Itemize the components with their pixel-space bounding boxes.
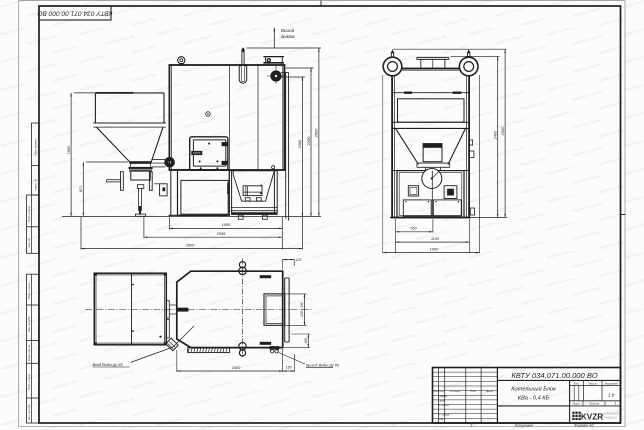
svg-text:1:8: 1:8 [608,392,615,397]
svg-text:1600: 1600 [232,365,241,370]
svg-text:КВТУ 034.071.00.000 ВО: КВТУ 034.071.00.000 ВО [38,10,113,17]
svg-text:100: 100 [304,338,308,344]
svg-text:1: 1 [615,402,617,406]
svg-text:1: 1 [471,423,473,427]
svg-text:Формат А2: Формат А2 [574,423,594,427]
svg-text:Масштаб: Масштаб [605,381,618,385]
svg-text:Н. контр.: Н. контр. [439,413,451,416]
svg-text:Дата: Дата [485,390,493,393]
svg-text:2250: 2250 [306,136,311,146]
svg-text:Масса: Масса [589,381,597,385]
svg-text:871: 871 [78,186,83,193]
svg-text:2500: 2500 [314,128,319,138]
svg-text:Пров.: Пров. [439,400,446,403]
svg-text:Лист: Лист [437,390,444,393]
svg-text:1650: 1650 [222,222,231,227]
svg-text:Взам. инв. №: Взам. инв. № [27,345,31,361]
svg-text:Утв.: Утв. [439,418,445,421]
svg-text:Выход: Выход [281,28,295,33]
svg-text:Лит.: Лит. [572,381,580,385]
svg-text:225 x 180: 225 x 180 [300,302,304,318]
svg-text:ЗАВОД КЗ: ЗАВОД КЗ [604,416,617,420]
svg-text:2086: 2086 [297,139,302,149]
svg-text:2800: 2800 [185,242,195,247]
svg-text:дымов: дымов [281,34,295,39]
svg-text:195: 195 [286,366,292,370]
svg-text:Выход Воды Ду 65: Выход Воды Ду 65 [306,363,340,367]
svg-text:Т. контр.: Т. контр. [439,404,450,407]
svg-text:Подп. и дата: Подп. и дата [27,373,31,390]
svg-text:КВТУ 034.071.00.000 ВО: КВТУ 034.071.00.000 ВО [511,371,597,380]
svg-text:Котельный Блок: Котельный Блок [511,385,556,392]
svg-text:2500: 2500 [500,126,505,136]
svg-text:Перв. примен.: Перв. примен. [34,138,38,156]
svg-text:Вход Воды Ду 65: Вход Воды Ду 65 [93,363,124,367]
svg-text:KVZR: KVZR [581,412,603,421]
svg-text:2095: 2095 [216,231,226,236]
svg-text:№ докум.: № докум. [450,390,461,393]
svg-text:2400: 2400 [493,130,498,140]
svg-text:КОТЕЛЬНЫЙ: КОТЕЛЬНЫЙ [602,412,618,416]
svg-text:Подп. и дата: Подп. и дата [27,282,31,299]
svg-text:Изм: Изм [433,390,438,393]
svg-text:Лист: Лист [572,402,581,406]
svg-text:Инв. №: Инв. № [27,238,31,247]
svg-text:Подп. и дата: Подп. и дата [27,205,31,222]
svg-text:1600: 1600 [430,246,439,251]
svg-text:Копировал: Копировал [515,423,533,427]
svg-text:1100: 1100 [431,236,440,241]
svg-text:550: 550 [410,226,417,231]
svg-text:Инв. № дубл.: Инв. № дубл. [27,316,31,332]
svg-text:Справ. №: Справ. № [34,179,38,191]
svg-text:Листов: Листов [588,402,599,406]
svg-text:Инв. № подл.: Инв. № подл. [27,404,31,420]
svg-text:Разраб.: Разраб. [439,395,448,398]
svg-text:Подп.: Подп. [470,390,477,393]
svg-text:120: 120 [296,258,302,262]
svg-text:КВа - 0,4 КБ: КВа - 0,4 КБ [518,395,550,401]
svg-text:1950: 1950 [66,145,71,154]
